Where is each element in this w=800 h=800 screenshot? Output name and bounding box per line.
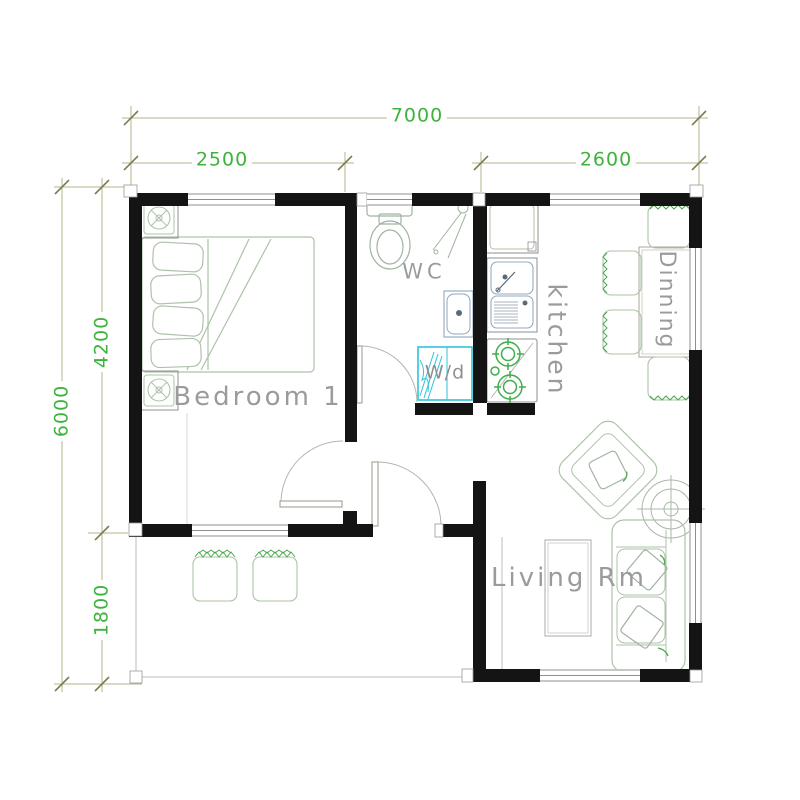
dimension-total-depth: 6000 [53,381,72,441]
armchair [554,416,661,523]
label-washer-dryer: W/d [425,364,465,383]
wc-sink [444,291,473,337]
window-bedroom-bottom [192,524,288,537]
entrance-door [372,462,441,526]
toilet [367,197,412,269]
terrace-outline [136,413,502,677]
terrace-chair-2 [253,550,297,601]
window-wc-top [367,193,412,206]
window-dining-right [689,248,702,350]
shower-head [433,203,468,258]
window-dining-top [550,193,640,206]
label-dining: Dinning [655,251,677,350]
fridge [486,201,538,253]
label-kitchen: kitchen [545,283,570,396]
label-living: Living Rm [491,565,647,591]
terrace-chair-1 [193,550,237,601]
dimension-bedroom-width: 2500 [192,151,252,170]
dimension-total-width: 7000 [387,107,447,126]
window-living-bottom [540,669,640,682]
nightstand-bottom [140,371,178,410]
label-wc: WC [402,262,445,283]
wc-door [357,346,417,403]
kitchen-sink [487,258,537,332]
bed [142,237,314,372]
dimension-dining-width: 2600 [576,151,636,170]
floor-plan: 7000 2500 2600 6000 4200 1800 Bedroom 1 … [0,0,800,800]
window-bedroom-top [188,193,275,206]
dimension-terrace-depth: 1800 [93,580,112,640]
bedroom-door [280,441,343,507]
label-bedroom: Bedroom 1 [173,384,342,410]
window-living-right [689,523,702,623]
dimension-main-depth: 4200 [93,312,112,372]
stove [487,338,537,403]
sofa [612,520,685,672]
